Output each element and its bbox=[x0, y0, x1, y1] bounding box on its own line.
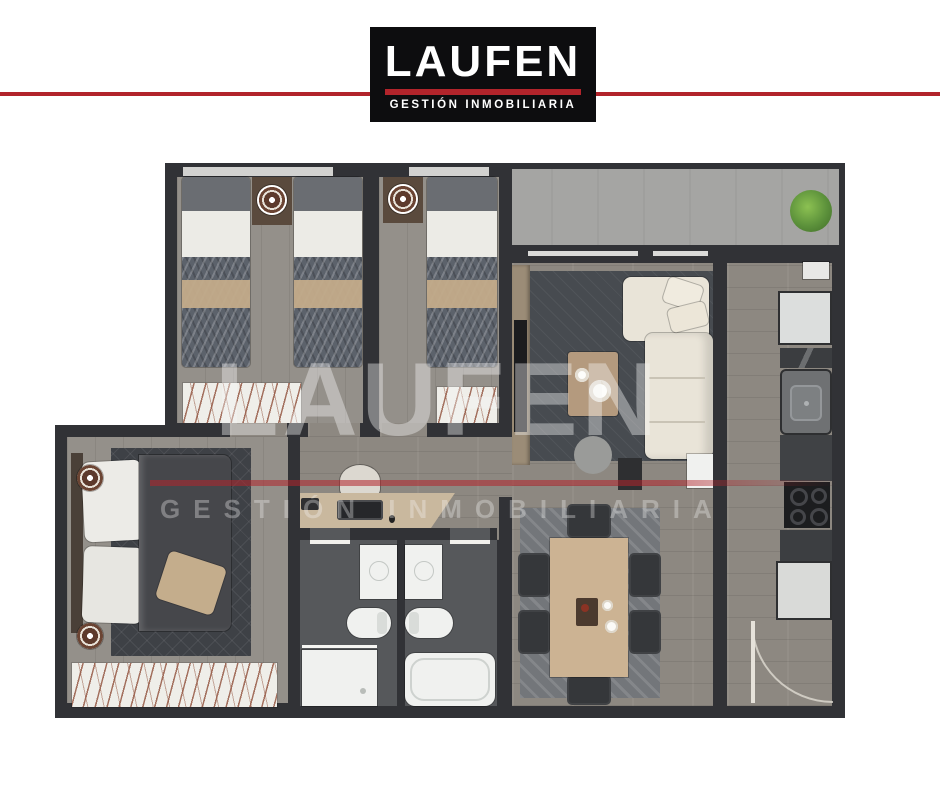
twin-bed-1 bbox=[182, 177, 250, 367]
wall-bath2-dining bbox=[499, 497, 512, 718]
vanity-sink-1 bbox=[360, 545, 397, 599]
bath-2-door-leaf bbox=[450, 540, 490, 544]
bathtub bbox=[405, 653, 495, 706]
toilet-2 bbox=[405, 608, 453, 638]
dining-chair-left-1 bbox=[518, 553, 550, 597]
brand-accent-bar bbox=[385, 89, 581, 95]
bath-1-door-opening bbox=[310, 528, 350, 540]
dining-chair-bottom bbox=[567, 675, 611, 705]
wall-master-bath bbox=[288, 437, 300, 703]
brand-logo: LAUFEN GESTIÓN INMOBILIARIA bbox=[370, 27, 596, 122]
watermark-tagline: GESTIÓN INMOBILIARIA bbox=[160, 494, 725, 525]
master-side-table-2 bbox=[77, 623, 103, 649]
master-hatched-rug bbox=[72, 663, 277, 707]
sliding-glass-door bbox=[528, 251, 638, 256]
brand-name: LAUFEN bbox=[385, 40, 581, 84]
fridge bbox=[780, 293, 830, 343]
round-tray-decor-1 bbox=[257, 185, 287, 215]
entry-door-leaf bbox=[751, 621, 755, 703]
vanity-sink-2 bbox=[405, 545, 442, 599]
wall-between-baths bbox=[397, 540, 405, 706]
potted-plant bbox=[790, 190, 832, 232]
master-side-table-1 bbox=[77, 465, 103, 491]
watermark-accent-line bbox=[150, 480, 838, 486]
kitchen-sink-unit bbox=[782, 371, 830, 433]
brand-tagline: GESTIÓN INMOBILIARIA bbox=[390, 99, 577, 111]
bath-1-door-leaf bbox=[310, 540, 350, 544]
bedroom-2-window bbox=[409, 167, 489, 176]
dining-chair-right-2 bbox=[629, 610, 661, 654]
watermark-brand-name: LAUFEN bbox=[215, 348, 735, 452]
round-tray-decor-2 bbox=[388, 184, 418, 214]
stove bbox=[784, 482, 830, 528]
counter-1 bbox=[780, 348, 832, 368]
toilet-1 bbox=[347, 608, 391, 638]
bedroom-1-window bbox=[183, 167, 333, 176]
kitchen-appliance bbox=[778, 563, 830, 618]
dining-chair-left-2 bbox=[518, 610, 550, 654]
upper-cabinet bbox=[803, 262, 829, 279]
balcony-floor bbox=[505, 169, 839, 245]
twin-bed-2 bbox=[294, 177, 362, 367]
flyer-page: LAUFEN GESTIÓN INMOBILIARIA bbox=[0, 0, 940, 788]
master-pillow-2 bbox=[82, 546, 145, 624]
shower-glass bbox=[302, 645, 377, 648]
dining-table bbox=[550, 538, 628, 677]
shower-tray bbox=[302, 650, 377, 706]
twin-bed-3 bbox=[427, 177, 497, 367]
counter-2 bbox=[780, 435, 832, 481]
sliding-glass-door-2 bbox=[653, 251, 708, 256]
counter-3 bbox=[780, 530, 832, 561]
dining-chair-right-1 bbox=[629, 553, 661, 597]
bath-2-door-opening bbox=[450, 528, 490, 540]
